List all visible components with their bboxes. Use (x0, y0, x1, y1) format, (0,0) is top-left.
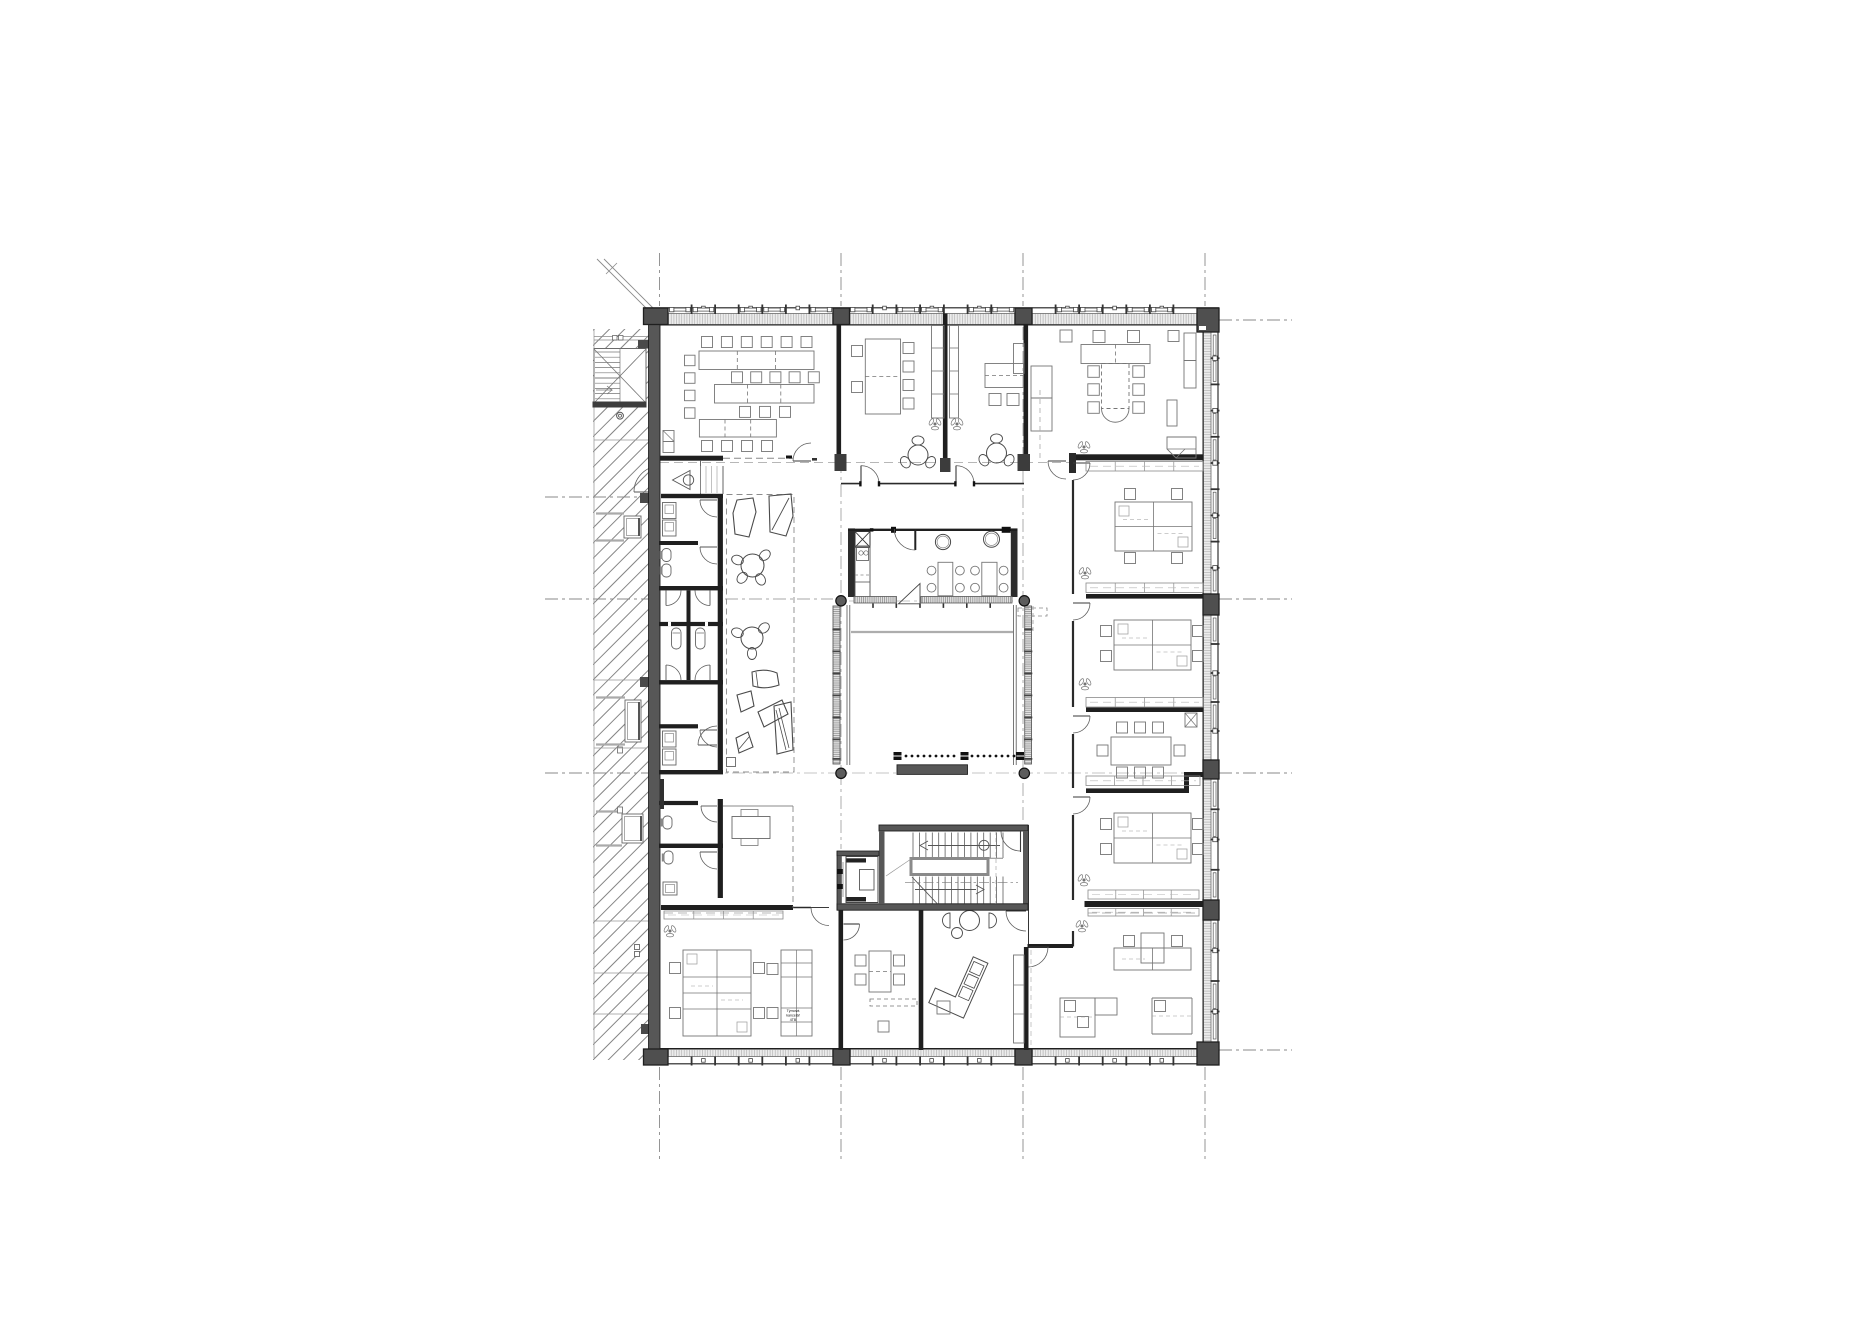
svg-text:kancelář: kancelář (786, 1014, 800, 1018)
svg-text:4TB: 4TB (790, 1018, 797, 1022)
svg-text:Týmová: Týmová (787, 1009, 800, 1013)
